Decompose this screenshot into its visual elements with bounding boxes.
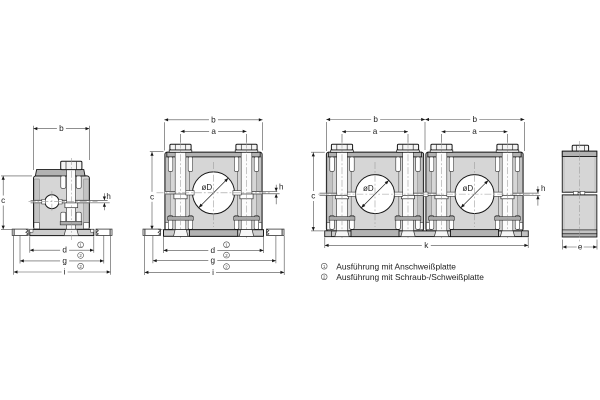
svg-text:i: i [64,268,66,277]
svg-text:øD: øD [462,184,473,193]
svg-text:b: b [473,115,478,124]
svg-text:Ausführung mit Schraub-/Schwei: Ausführung mit Schraub-/Schweißplatte [336,272,484,282]
svg-text:d: d [211,246,216,255]
svg-text:Ausführung mit Anschweißplatte: Ausführung mit Anschweißplatte [336,262,456,272]
svg-text:h: h [279,183,283,192]
svg-text:øD: øD [363,184,374,193]
svg-text:h: h [106,192,110,201]
svg-text:c: c [1,196,5,205]
svg-text:d: d [62,246,67,255]
svg-text:h: h [541,184,545,193]
svg-text:e: e [578,243,583,252]
svg-text:a: a [373,127,378,136]
svg-text:c: c [150,192,154,201]
svg-text:a: a [211,127,216,136]
svg-text:g: g [211,256,216,265]
svg-text:øD: øD [201,183,212,192]
svg-text:b: b [211,115,216,124]
svg-text:a: a [472,127,477,136]
svg-text:i: i [212,268,214,277]
svg-text:b: b [373,115,378,124]
svg-text:b: b [59,124,64,133]
svg-text:c: c [311,192,315,201]
svg-text:g: g [62,256,67,265]
